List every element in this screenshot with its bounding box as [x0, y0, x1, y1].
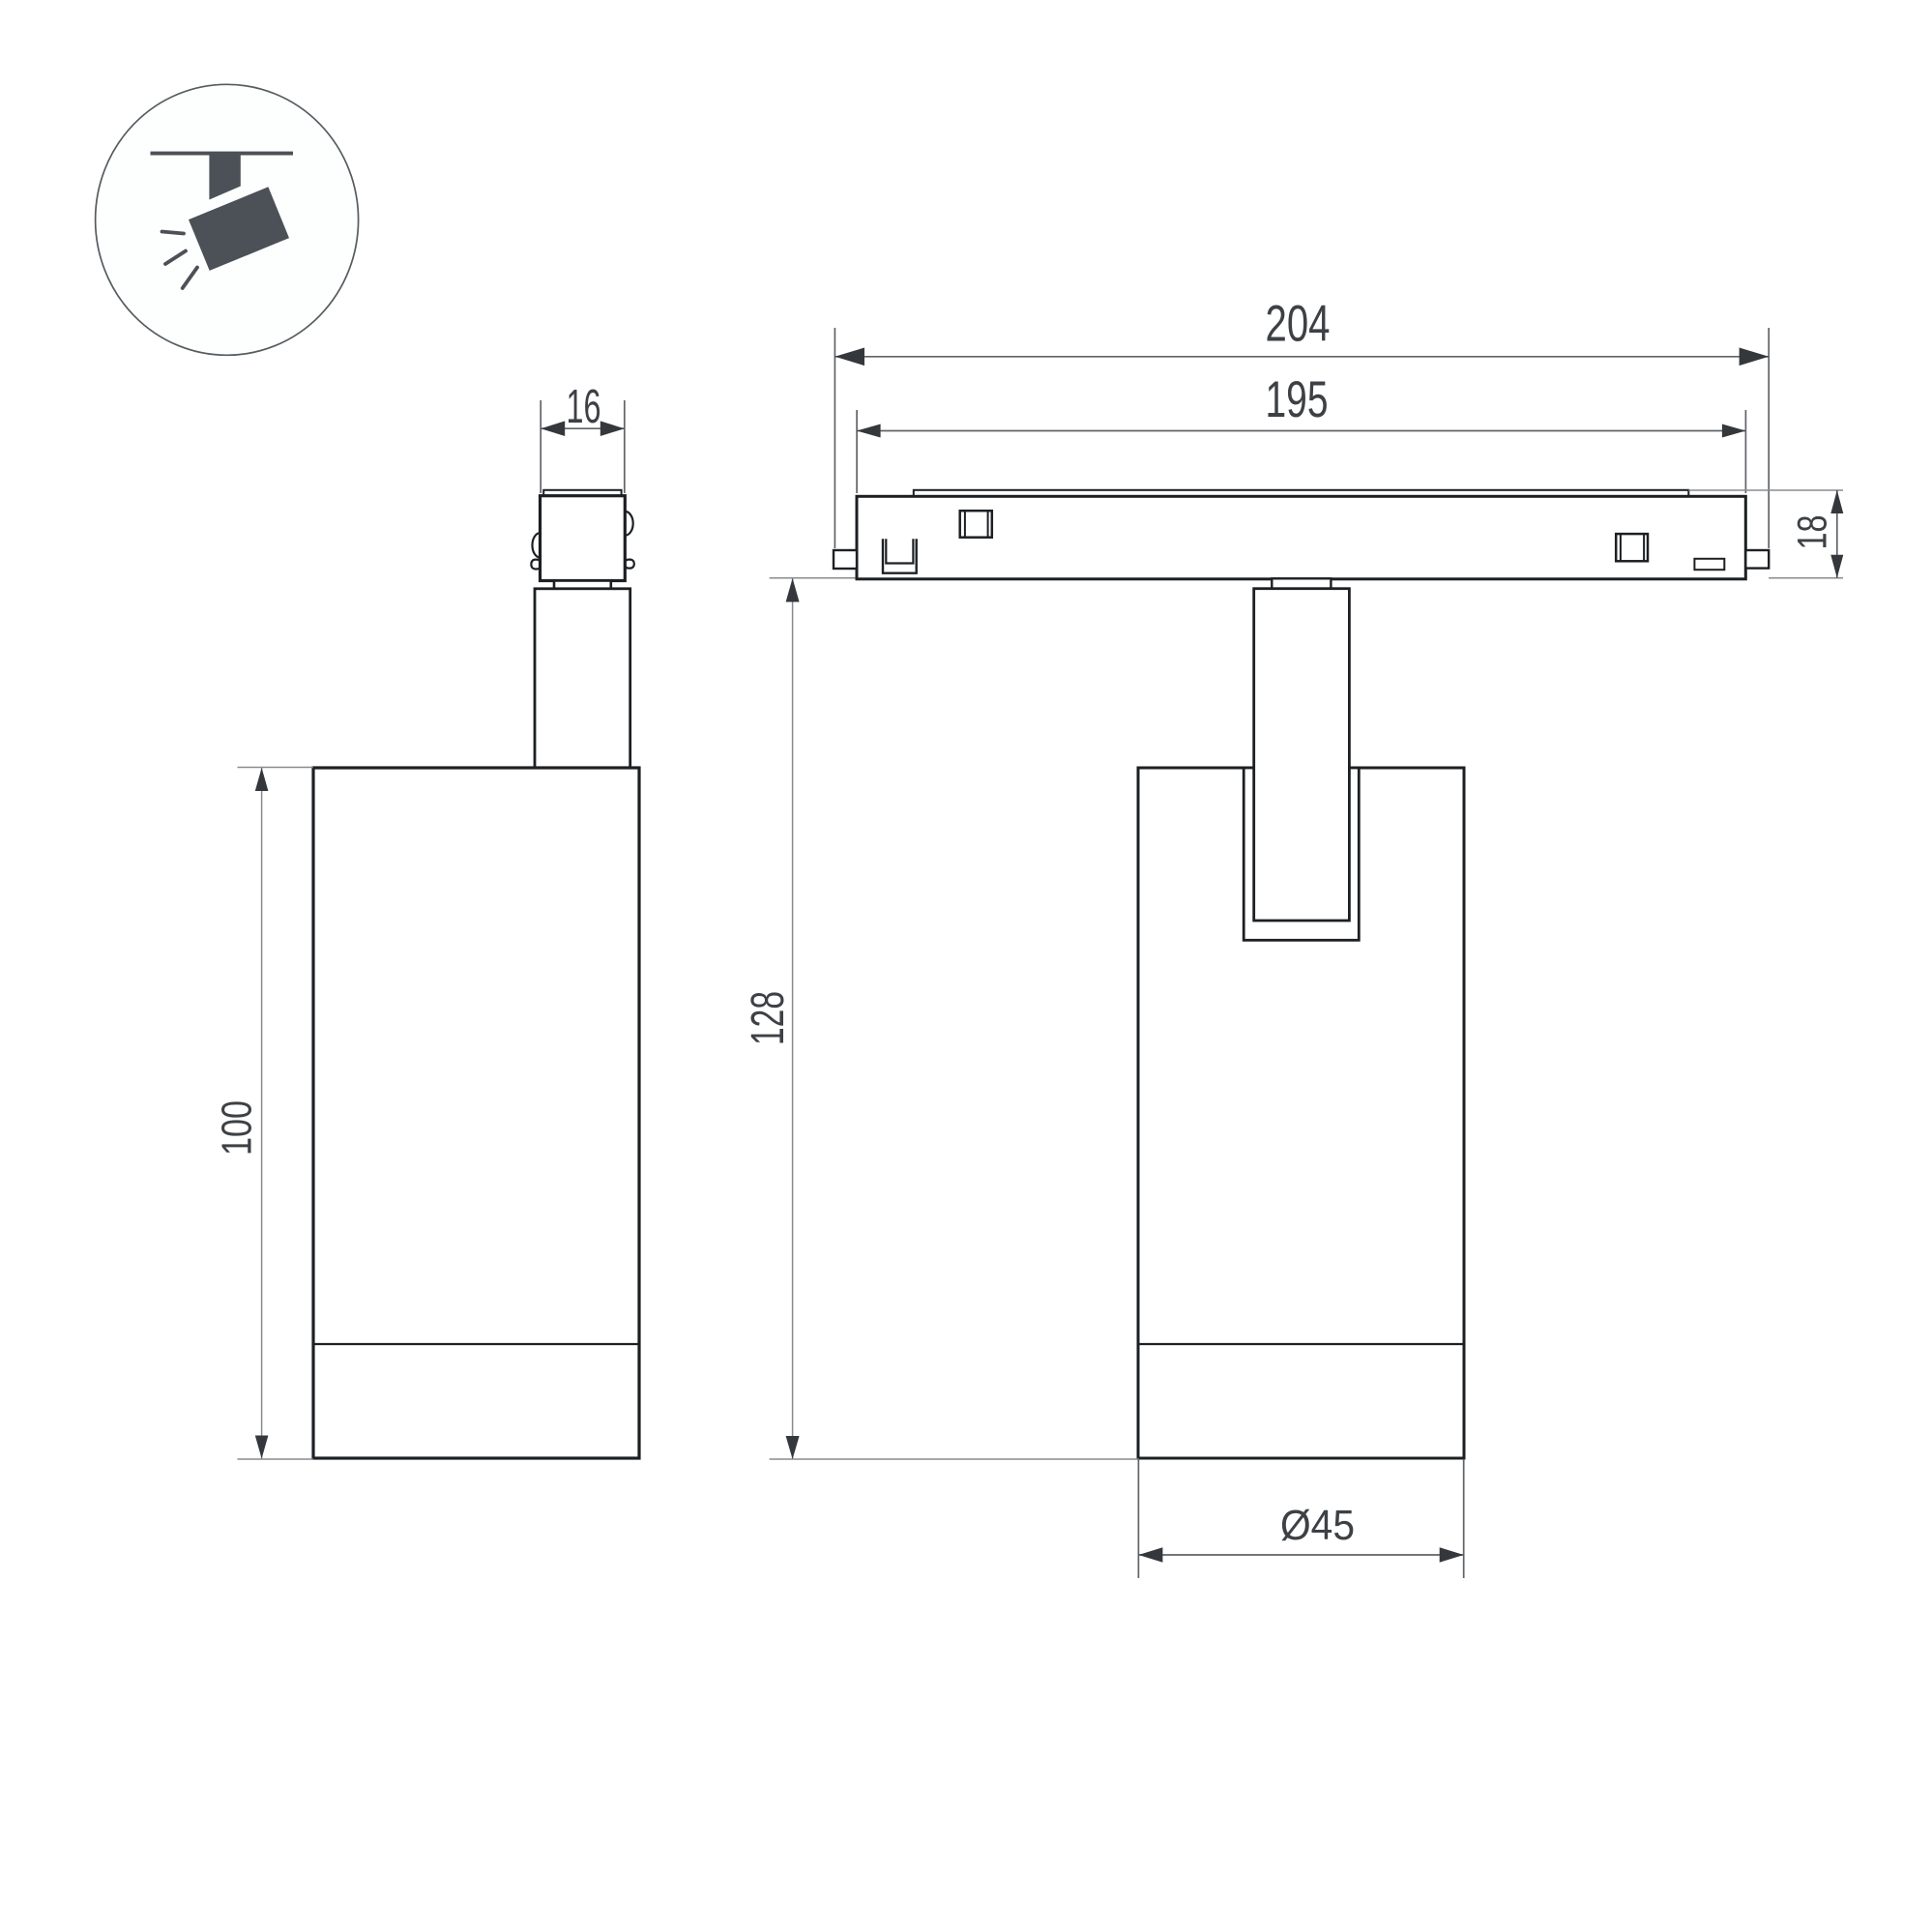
svg-text:Ø45: Ø45 — [1280, 1502, 1355, 1549]
svg-text:204: 204 — [1266, 296, 1331, 353]
svg-text:195: 195 — [1266, 371, 1329, 428]
svg-text:18: 18 — [1790, 515, 1836, 550]
svg-text:100: 100 — [215, 1100, 261, 1156]
svg-text:16: 16 — [567, 380, 601, 433]
svg-text:128: 128 — [743, 991, 794, 1045]
